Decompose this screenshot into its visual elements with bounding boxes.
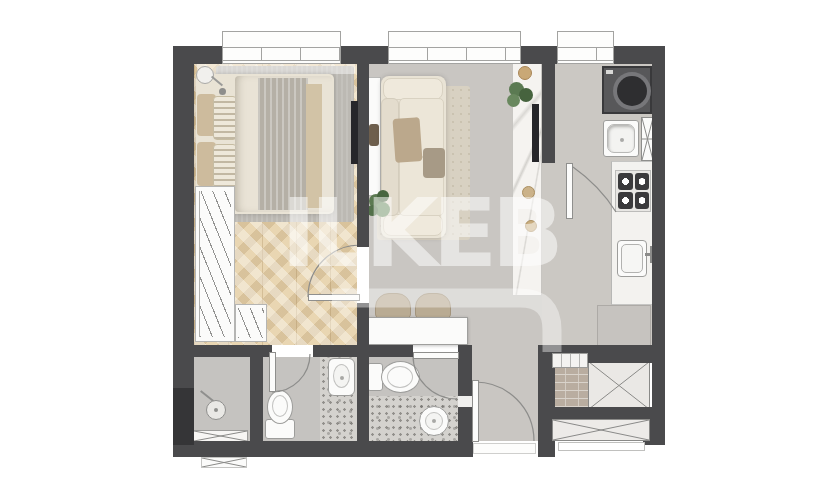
wall-bottom-left [173, 441, 473, 457]
living-tv [532, 104, 539, 162]
vent-grille [552, 353, 588, 368]
kitchen-door-arc [573, 167, 616, 212]
wall-bath-top-1 [194, 345, 272, 357]
wall-bedroom-living-lower [357, 303, 369, 345]
entrance-threshold [473, 443, 536, 454]
bedroom-door-leaf [308, 294, 360, 301]
wall-right [652, 46, 665, 421]
entry-wall-shelf [458, 396, 472, 407]
living-window [388, 31, 521, 64]
wall-living-kitchen [542, 63, 555, 163]
kitchen-window [557, 31, 614, 64]
bedroom-door-arc [308, 245, 360, 297]
ensuite-door-arc [272, 354, 310, 392]
entrance-door-leaf [472, 380, 479, 442]
wall-bedroom-living-upper [357, 63, 369, 247]
door-swing-arcs [0, 0, 840, 500]
exterior-vent-x [202, 458, 246, 467]
wall-shower-divider [250, 357, 263, 441]
guest-door-leaf [413, 352, 459, 359]
kitchen-door-leaf [566, 163, 573, 219]
entrance-door-arc [475, 382, 534, 441]
wall-bath-divider [357, 345, 369, 441]
exterior-unit-x [553, 420, 649, 440]
living-window-frame [389, 47, 520, 61]
guest-door-arc [413, 355, 457, 399]
bedroom-window [222, 31, 341, 64]
kitchen-window-frame [558, 47, 613, 61]
bedroom-tv [351, 101, 358, 164]
wall-guestbath-entry [458, 345, 472, 443]
ensuite-door-leaf [269, 352, 276, 392]
floor-plan: ILKEB [0, 0, 840, 500]
wall-left-pillar [173, 388, 194, 445]
exterior-sill [558, 442, 645, 451]
bedroom-window-frame [223, 47, 340, 61]
exterior-vent-left [201, 457, 247, 468]
exterior-unit-box [552, 419, 650, 441]
